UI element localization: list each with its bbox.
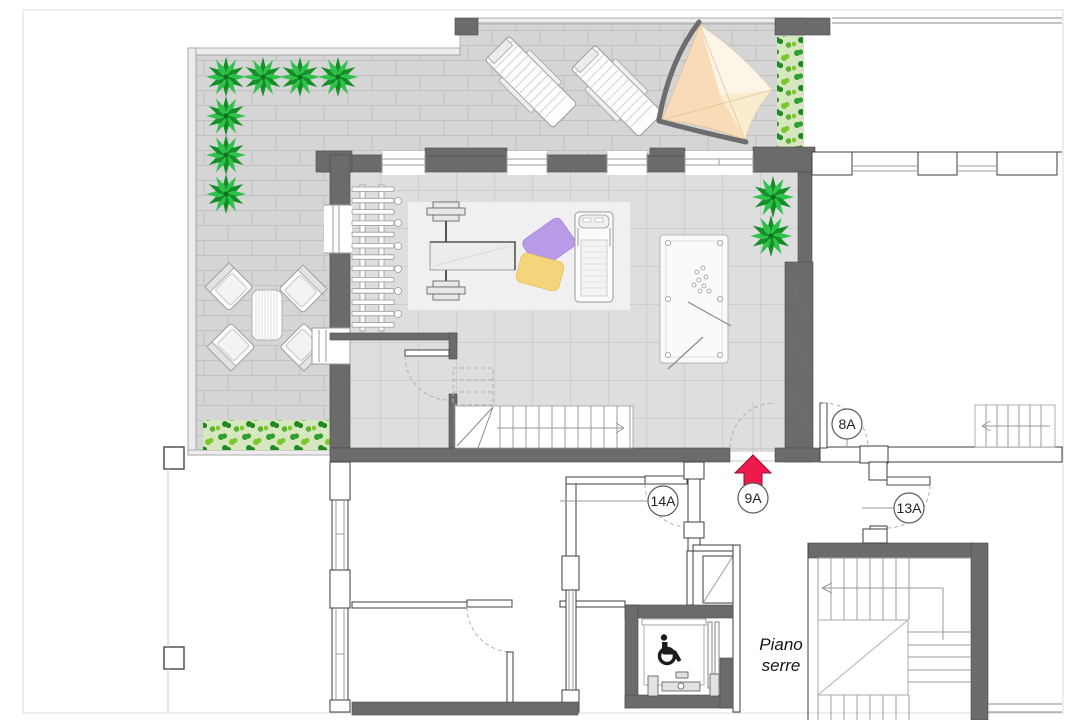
- door-leaf: [467, 600, 512, 607]
- elevator-door: [642, 619, 706, 625]
- wall-pier: [869, 462, 887, 480]
- hedge-icon: [203, 420, 330, 450]
- interior-wall: [820, 447, 1062, 462]
- floor-plan-drawing: 8A 9A 14A 13A Piano serre: [0, 0, 1080, 720]
- column: [164, 647, 184, 669]
- wall-pier: [562, 556, 579, 590]
- wall-pier: [860, 446, 888, 463]
- parapet-left: [188, 48, 196, 455]
- wall-pier: [425, 148, 507, 156]
- exterior-wall-windows: [330, 462, 350, 712]
- column: [164, 447, 184, 469]
- door-leaf-13a: [887, 477, 930, 485]
- lower-room: [352, 600, 578, 715]
- wall-pier: [684, 522, 704, 538]
- door-tag-label: 8A: [838, 416, 856, 432]
- pillar-block: [455, 18, 478, 35]
- adjacent-building: [812, 18, 1062, 175]
- staircase-icon: [975, 405, 1055, 447]
- hedge-icon: [777, 36, 803, 155]
- wall-corner: [753, 147, 815, 172]
- door-tag-label: 9A: [744, 490, 762, 506]
- interior-wall: [687, 551, 693, 605]
- wall-right: [798, 172, 812, 264]
- pillar-block: [775, 18, 830, 35]
- wall-bottom: [330, 448, 730, 462]
- elevator-icon: [625, 545, 740, 712]
- floor-label-line2: serre: [762, 656, 801, 675]
- door-leaf-14a: [645, 476, 687, 484]
- door-tag-label: 13A: [897, 500, 923, 516]
- wall-pier: [775, 448, 820, 462]
- floor-label-line1: Piano: [759, 635, 802, 654]
- stairwell: [808, 529, 988, 720]
- wall-bottom: [352, 702, 578, 715]
- treadmill-icon: [575, 212, 613, 302]
- door-leaf-8a: [820, 403, 827, 448]
- door-swing-arc: [467, 607, 512, 652]
- corridor-wall: [566, 484, 576, 712]
- wall-pier: [650, 148, 685, 156]
- parapet-top-right: [477, 18, 803, 23]
- terrace-bottom-edge: [188, 450, 330, 455]
- interior-wall: [566, 477, 645, 484]
- door-tag-label: 14A: [651, 493, 677, 509]
- wall-pier: [684, 462, 704, 479]
- floor-plan-canvas: 8A 9A 14A 13A Piano serre: [0, 0, 1080, 720]
- door-leaf: [405, 350, 449, 356]
- billiard-table-icon: [660, 235, 731, 369]
- parapet-top: [188, 48, 460, 55]
- gym-room: [312, 147, 820, 462]
- wall-left: [330, 155, 350, 448]
- wall-right: [785, 262, 813, 462]
